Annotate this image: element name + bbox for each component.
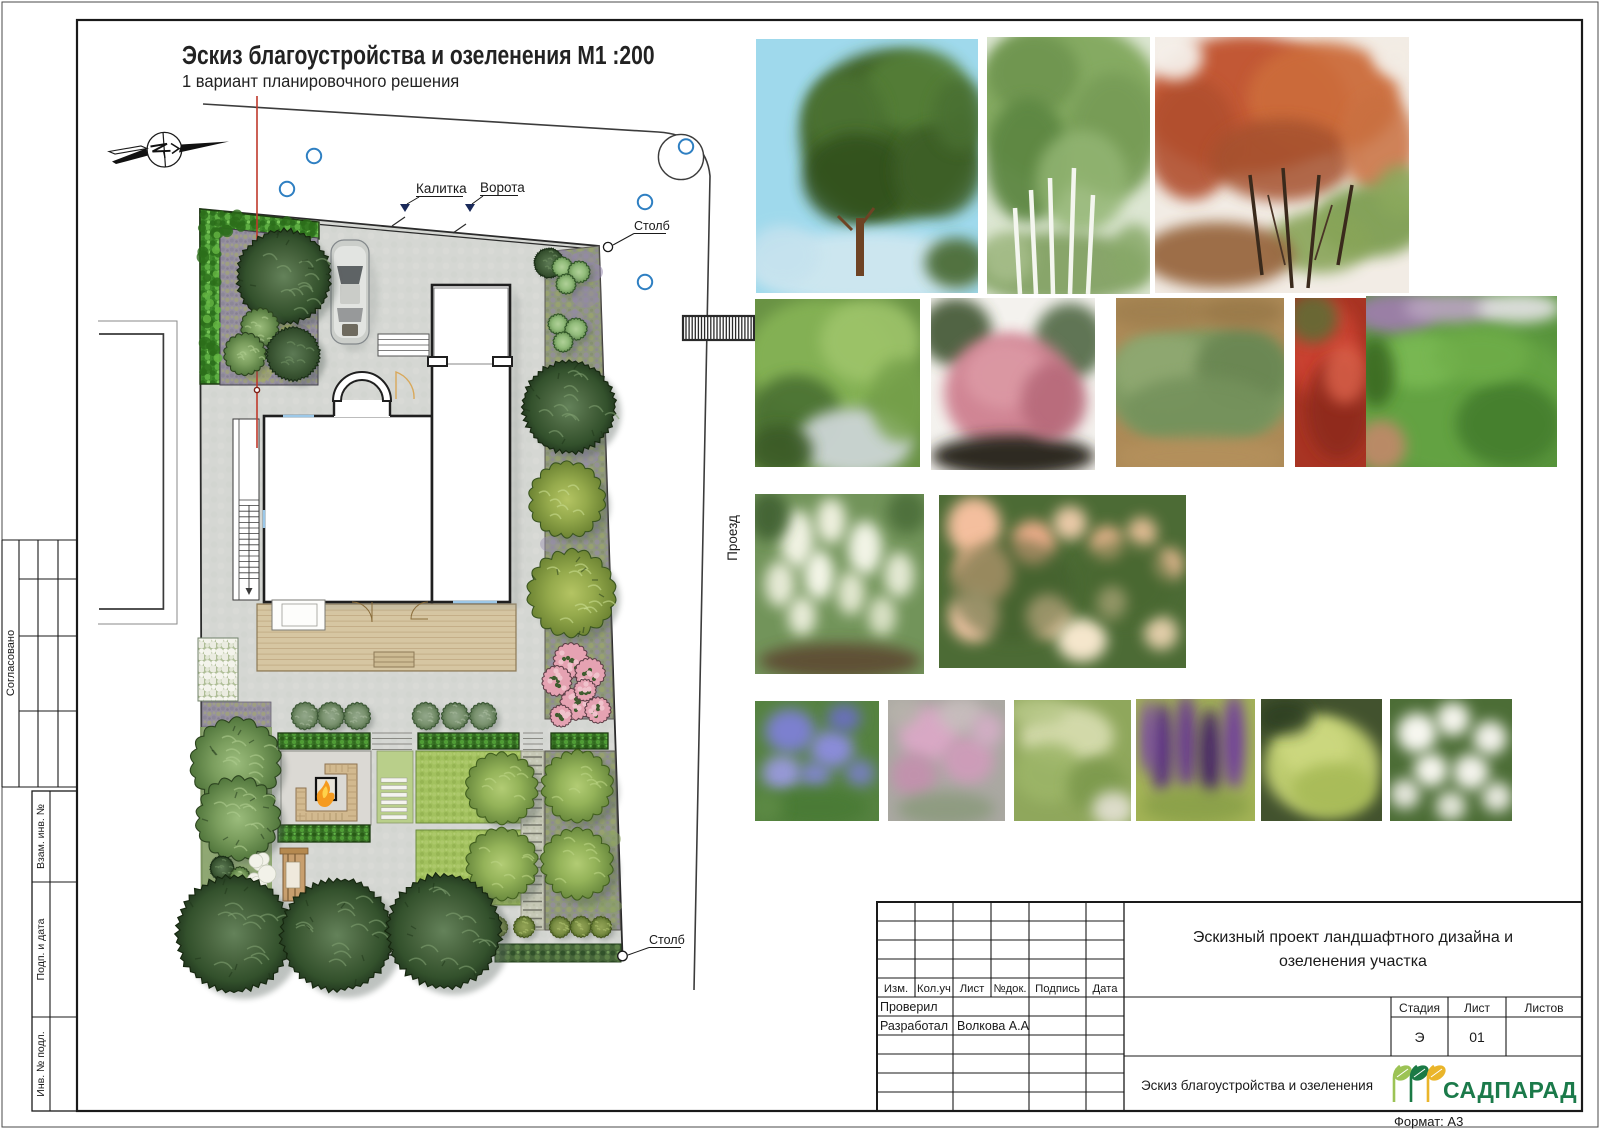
svg-text:01: 01: [1469, 1029, 1485, 1045]
svg-text:Листов: Листов: [1525, 1001, 1564, 1015]
svg-text:Стадия: Стадия: [1399, 1001, 1440, 1015]
svg-text:Подп. и дата: Подп. и дата: [35, 918, 47, 980]
svg-text:Калитка: Калитка: [416, 181, 467, 196]
svg-text:Эскизный проект ландшафтного д: Эскизный проект ландшафтного дизайна и: [1193, 929, 1513, 946]
svg-text:Взам. инв. №: Взам. инв. №: [35, 804, 47, 869]
svg-text:Дата: Дата: [1092, 983, 1118, 995]
svg-text:Инв. № подл.: Инв. № подл.: [35, 1031, 47, 1096]
svg-text:№док.: №док.: [993, 983, 1026, 995]
svg-text:Лист: Лист: [960, 983, 985, 995]
svg-text:Лист: Лист: [1464, 1001, 1491, 1015]
svg-text:Формат: А3: Формат: А3: [1394, 1114, 1463, 1129]
svg-text:Проезд: Проезд: [725, 515, 740, 561]
svg-text:Столб: Столб: [649, 933, 685, 947]
svg-text:Проверил: Проверил: [880, 1000, 938, 1014]
svg-text:Согласовано: Согласовано: [5, 630, 17, 696]
svg-text:Эскиз благоустройства и озелен: Эскиз благоустройства и озеленения М1 :2…: [182, 42, 655, 71]
svg-text:1 вариант планировочного решен: 1 вариант планировочного решения: [182, 70, 459, 91]
svg-text:Ворота: Ворота: [480, 180, 525, 195]
svg-text:Столб: Столб: [634, 219, 670, 233]
svg-text:Подпись: Подпись: [1035, 983, 1080, 995]
svg-text:САДПАРАД: САДПАРАД: [1443, 1077, 1577, 1103]
svg-text:Эскиз благоустройства и озелен: Эскиз благоустройства и озеленения: [1141, 1078, 1373, 1093]
svg-text:озеленения участка: озеленения участка: [1279, 953, 1427, 970]
svg-text:Э: Э: [1414, 1029, 1424, 1045]
svg-text:Волкова А.А: Волкова А.А: [957, 1019, 1030, 1033]
svg-text:Изм.: Изм.: [884, 983, 908, 995]
svg-text:Кол.уч: Кол.уч: [917, 983, 951, 995]
svg-text:Разработал: Разработал: [880, 1019, 948, 1033]
